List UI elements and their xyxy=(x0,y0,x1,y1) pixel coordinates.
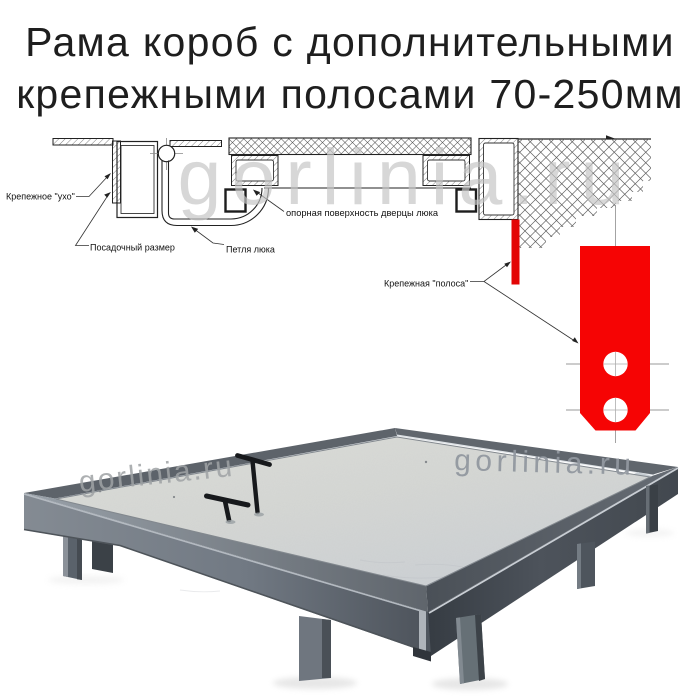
svg-text:Крепежная "полоса": Крепежная "полоса" xyxy=(384,279,468,289)
svg-text:gorlinia.ru: gorlinia.ru xyxy=(454,444,636,482)
svg-text:Петля люка: Петля люка xyxy=(226,245,275,255)
svg-text:Крепежное "ухо": Крепежное "ухо" xyxy=(6,192,75,202)
svg-text:gorlinia.ru: gorlinia.ru xyxy=(178,132,635,221)
svg-text:Посадочный размер: Посадочный размер xyxy=(90,243,175,253)
